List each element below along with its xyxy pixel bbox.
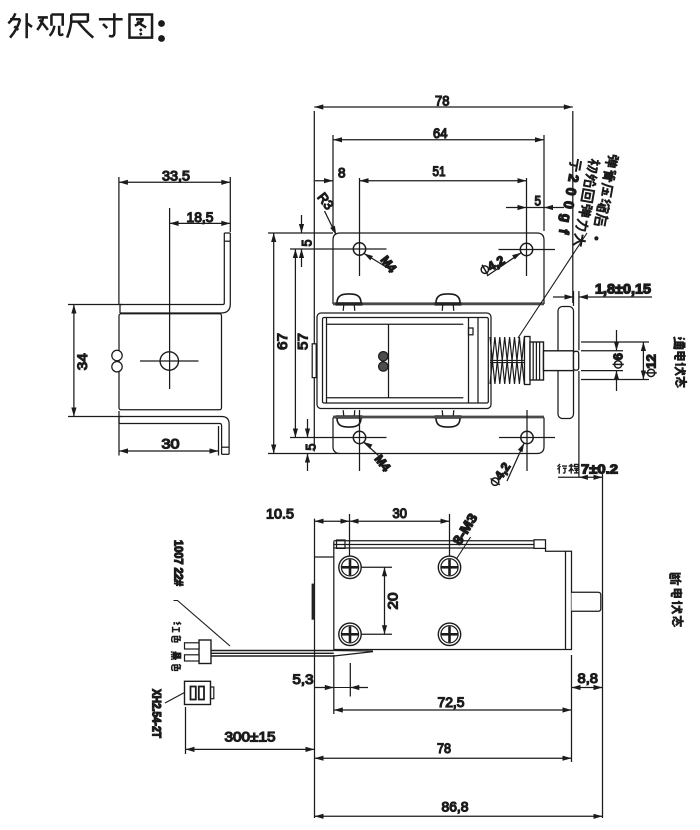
- svg-text:5: 5: [535, 194, 542, 209]
- svg-text:5,3: 5,3: [293, 672, 314, 687]
- svg-text:33,5: 33,5: [162, 169, 190, 184]
- svg-text:20: 20: [386, 593, 401, 610]
- svg-text:30: 30: [393, 506, 407, 521]
- svg-text:18,5: 18,5: [187, 210, 214, 225]
- svg-text:1007 22#: 1007 22#: [172, 540, 186, 586]
- svg-text:8: 8: [338, 166, 346, 181]
- svg-text:XH2.54-2T: XH2.54-2T: [150, 689, 164, 739]
- svg-text:300±15: 300±15: [225, 730, 276, 745]
- svg-text:5: 5: [300, 240, 315, 247]
- svg-text:57: 57: [296, 333, 311, 350]
- svg-text:86,8: 86,8: [442, 800, 469, 815]
- svg-text:34: 34: [75, 353, 90, 371]
- svg-text:78: 78: [435, 94, 449, 109]
- svg-text:72,5: 72,5: [438, 695, 465, 710]
- svg-text:7±0.2: 7±0.2: [581, 462, 618, 477]
- svg-text:8,8: 8,8: [578, 671, 599, 686]
- svg-text:5: 5: [304, 444, 319, 451]
- svg-text:64: 64: [433, 126, 448, 141]
- svg-text:78: 78: [437, 741, 451, 756]
- svg-text:1,8±0,15: 1,8±0,15: [595, 282, 652, 297]
- svg-text:30: 30: [162, 437, 180, 452]
- svg-text:51: 51: [433, 164, 446, 179]
- svg-text:12: 12: [644, 354, 659, 368]
- svg-text:67: 67: [275, 333, 290, 350]
- svg-text:10.5: 10.5: [266, 507, 294, 522]
- svg-text:6: 6: [611, 353, 626, 360]
